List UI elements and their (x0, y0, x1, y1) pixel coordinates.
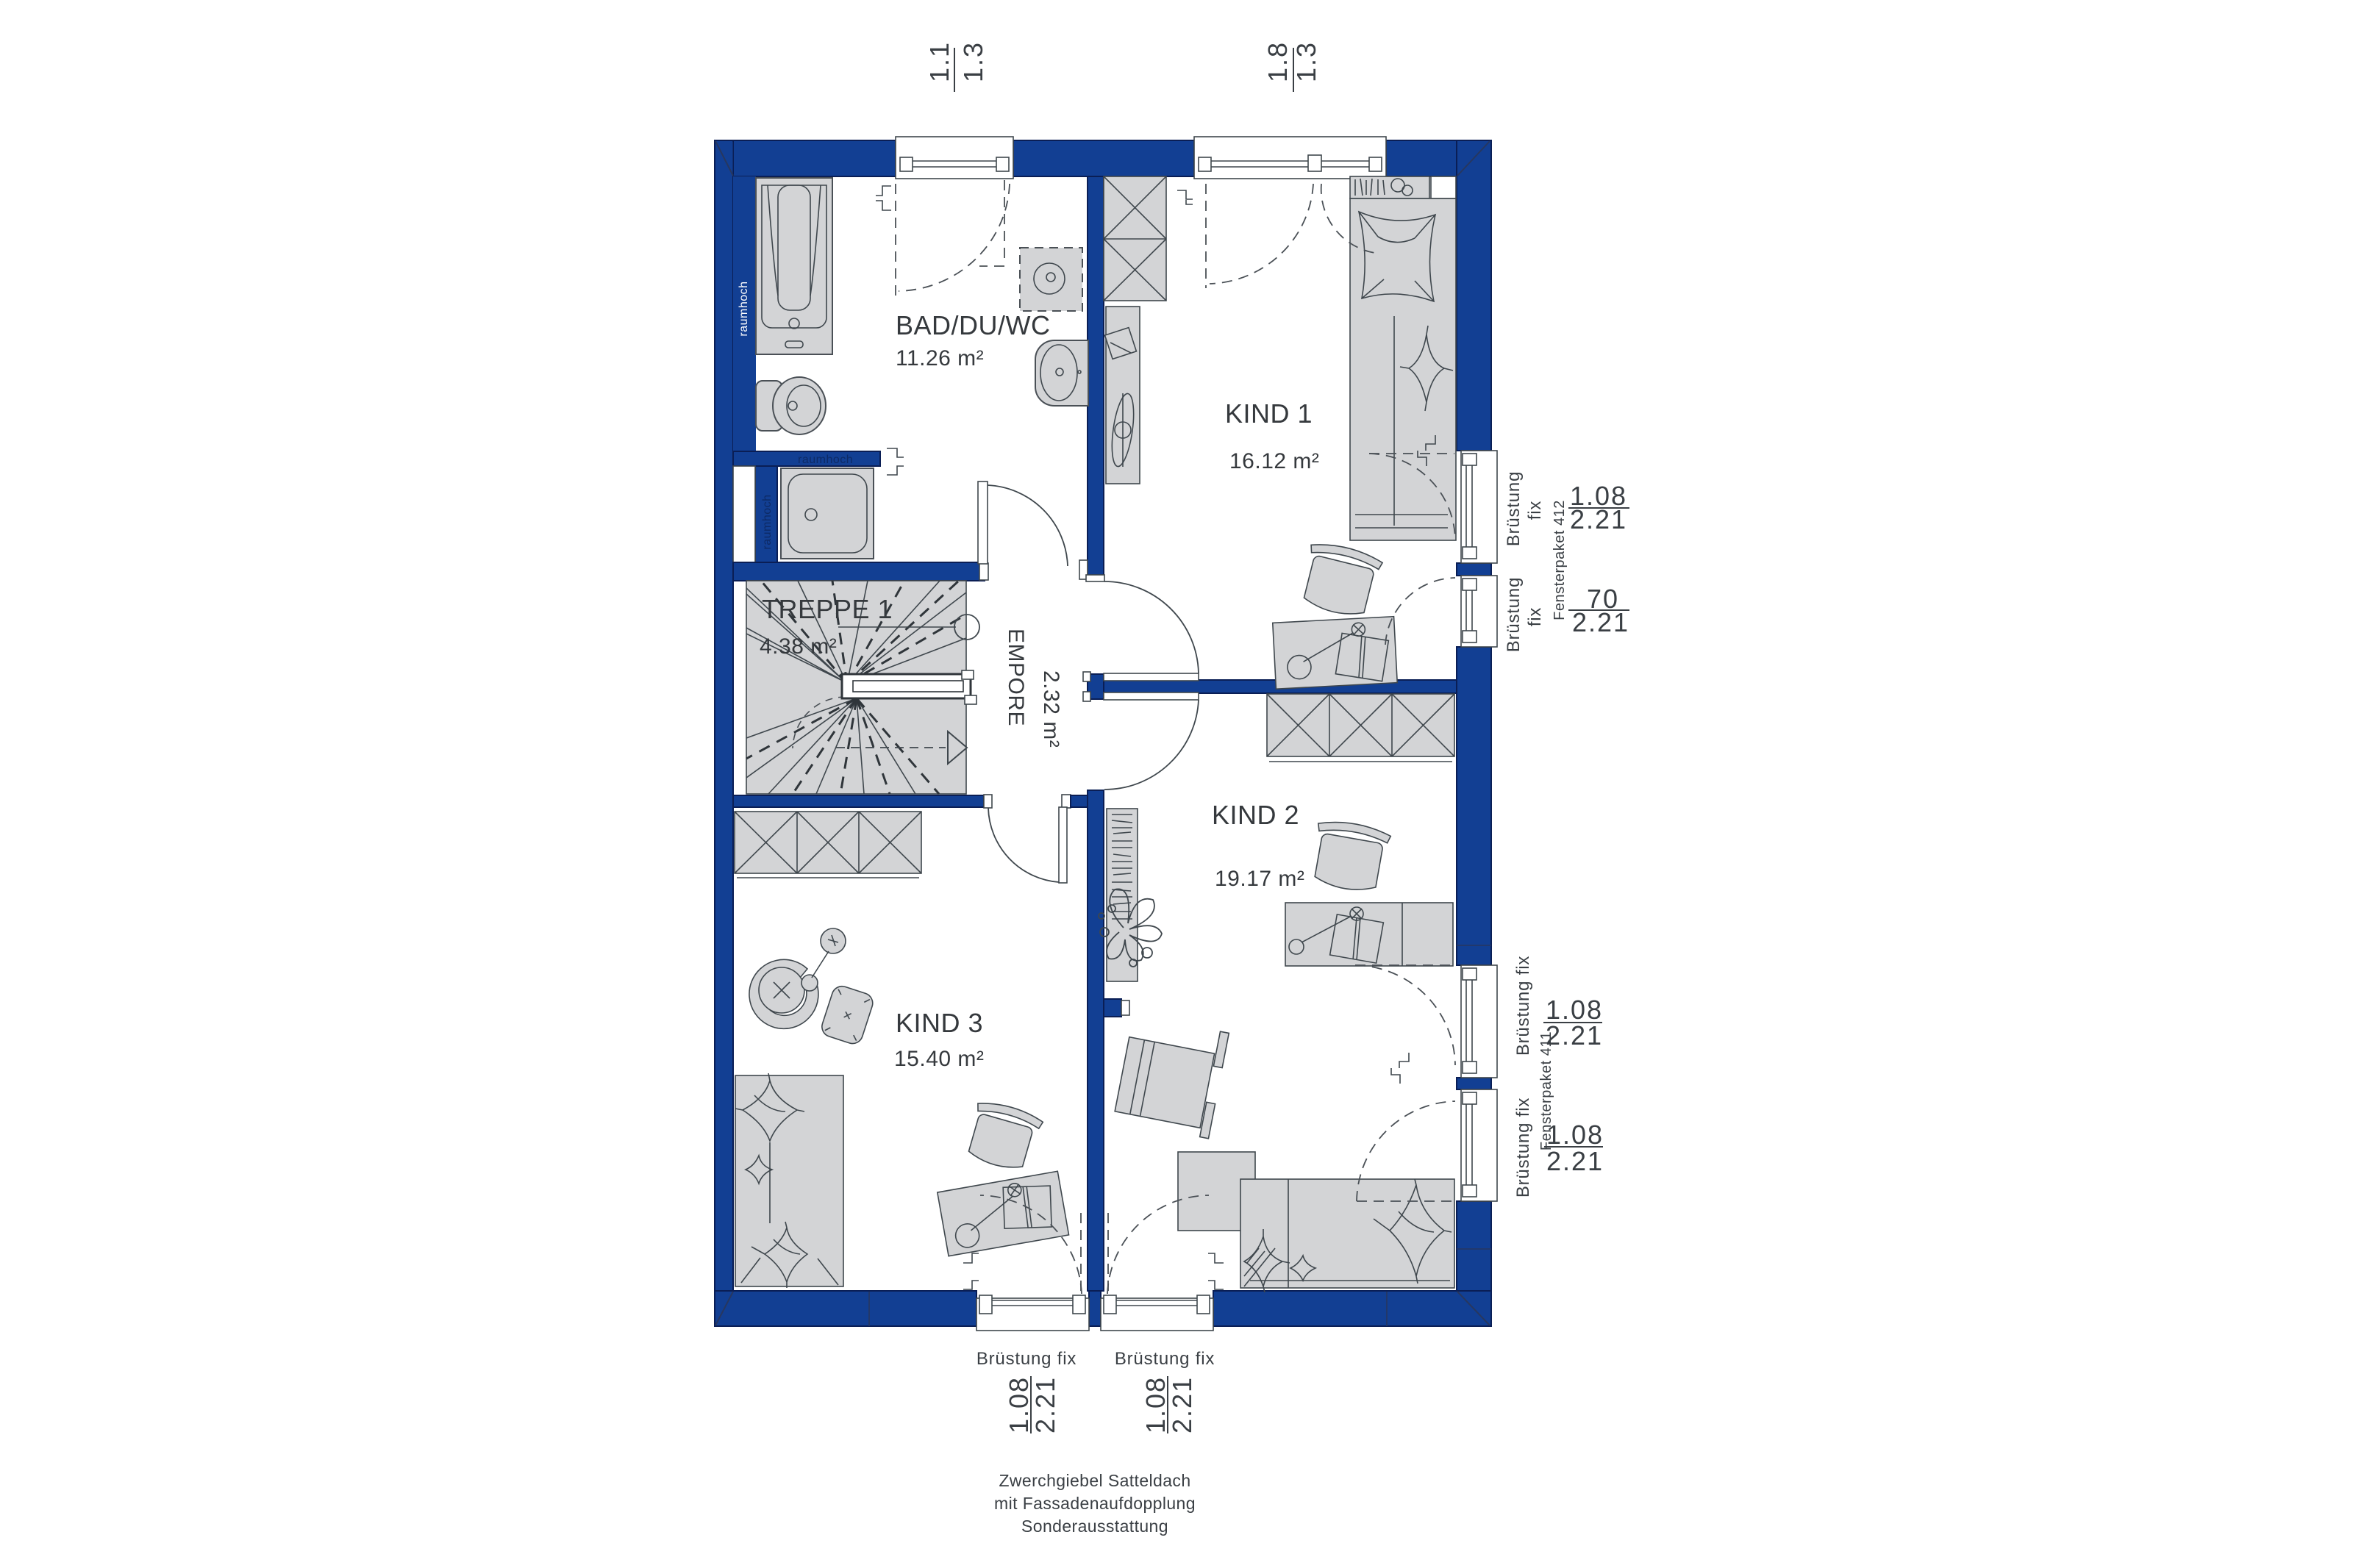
svg-text:Fensterpaket 412: Fensterpaket 412 (1552, 500, 1568, 620)
svg-text:Brüstung: Brüstung (1504, 577, 1524, 652)
svg-text:1.08: 1.08 (1140, 1376, 1171, 1433)
svg-text:Sonderausstattung: Sonderausstattung (1021, 1517, 1168, 1536)
svg-text:BAD/DU/WC: BAD/DU/WC (896, 310, 1051, 340)
svg-text:mit Fassadenaufdopplung: mit Fassadenaufdopplung (994, 1494, 1196, 1513)
svg-text:2.21: 2.21 (1546, 1020, 1603, 1050)
svg-text:raumhoch: raumhoch (738, 281, 750, 336)
svg-text:2.32 m²: 2.32 m² (1039, 670, 1063, 748)
svg-text:15.40 m²: 15.40 m² (894, 1047, 984, 1071)
svg-text:Brüstung fix: Brüstung fix (1513, 1098, 1533, 1198)
svg-text:Brüstung: Brüstung (1504, 471, 1524, 546)
svg-text:raumhoch: raumhoch (798, 454, 853, 466)
svg-text:fix: fix (1525, 501, 1545, 520)
svg-text:1.3: 1.3 (1291, 41, 1321, 82)
svg-text:19.17 m²: 19.17 m² (1215, 867, 1304, 891)
svg-text:1.8: 1.8 (1263, 41, 1293, 82)
svg-text:fix: fix (1525, 607, 1545, 626)
svg-text:2.21: 2.21 (1030, 1376, 1060, 1433)
svg-text:2.21: 2.21 (1570, 504, 1627, 534)
svg-text:2.21: 2.21 (1546, 1146, 1604, 1176)
svg-text:2.21: 2.21 (1167, 1376, 1197, 1433)
svg-text:11.26 m²: 11.26 m² (896, 346, 984, 370)
svg-text:1.08: 1.08 (1004, 1376, 1034, 1433)
svg-text:2.21: 2.21 (1572, 607, 1629, 637)
svg-text:KIND 3: KIND 3 (896, 1008, 983, 1038)
svg-text:Brüstung fix: Brüstung fix (1513, 956, 1533, 1056)
svg-text:1.3: 1.3 (958, 41, 988, 82)
svg-text:Brüstung fix: Brüstung fix (1115, 1349, 1215, 1369)
svg-text:raumhoch: raumhoch (761, 494, 774, 549)
svg-text:Zwerchgiebel Satteldach: Zwerchgiebel Satteldach (999, 1471, 1190, 1490)
svg-text:1.1: 1.1 (924, 41, 954, 82)
svg-text:TREPPE 1: TREPPE 1 (762, 594, 893, 624)
svg-text:KIND 2: KIND 2 (1212, 800, 1299, 830)
svg-text:Brüstung fix: Brüstung fix (976, 1349, 1076, 1369)
svg-text:16.12 m²: 16.12 m² (1229, 449, 1319, 473)
svg-text:1.08: 1.08 (1546, 1120, 1604, 1150)
svg-text:4.38 m²: 4.38 m² (760, 634, 837, 659)
svg-text:KIND 1: KIND 1 (1225, 398, 1313, 429)
svg-text:EMPORE: EMPORE (1004, 629, 1028, 726)
